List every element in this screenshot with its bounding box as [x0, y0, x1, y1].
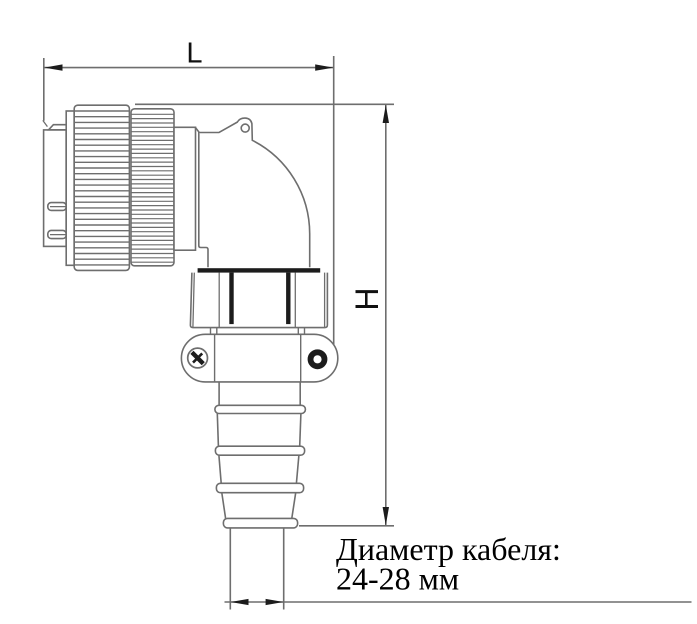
- svg-text:L: L: [186, 38, 202, 70]
- svg-text:H: H: [349, 287, 385, 310]
- svg-text:24-28 мм: 24-28 мм: [336, 561, 459, 597]
